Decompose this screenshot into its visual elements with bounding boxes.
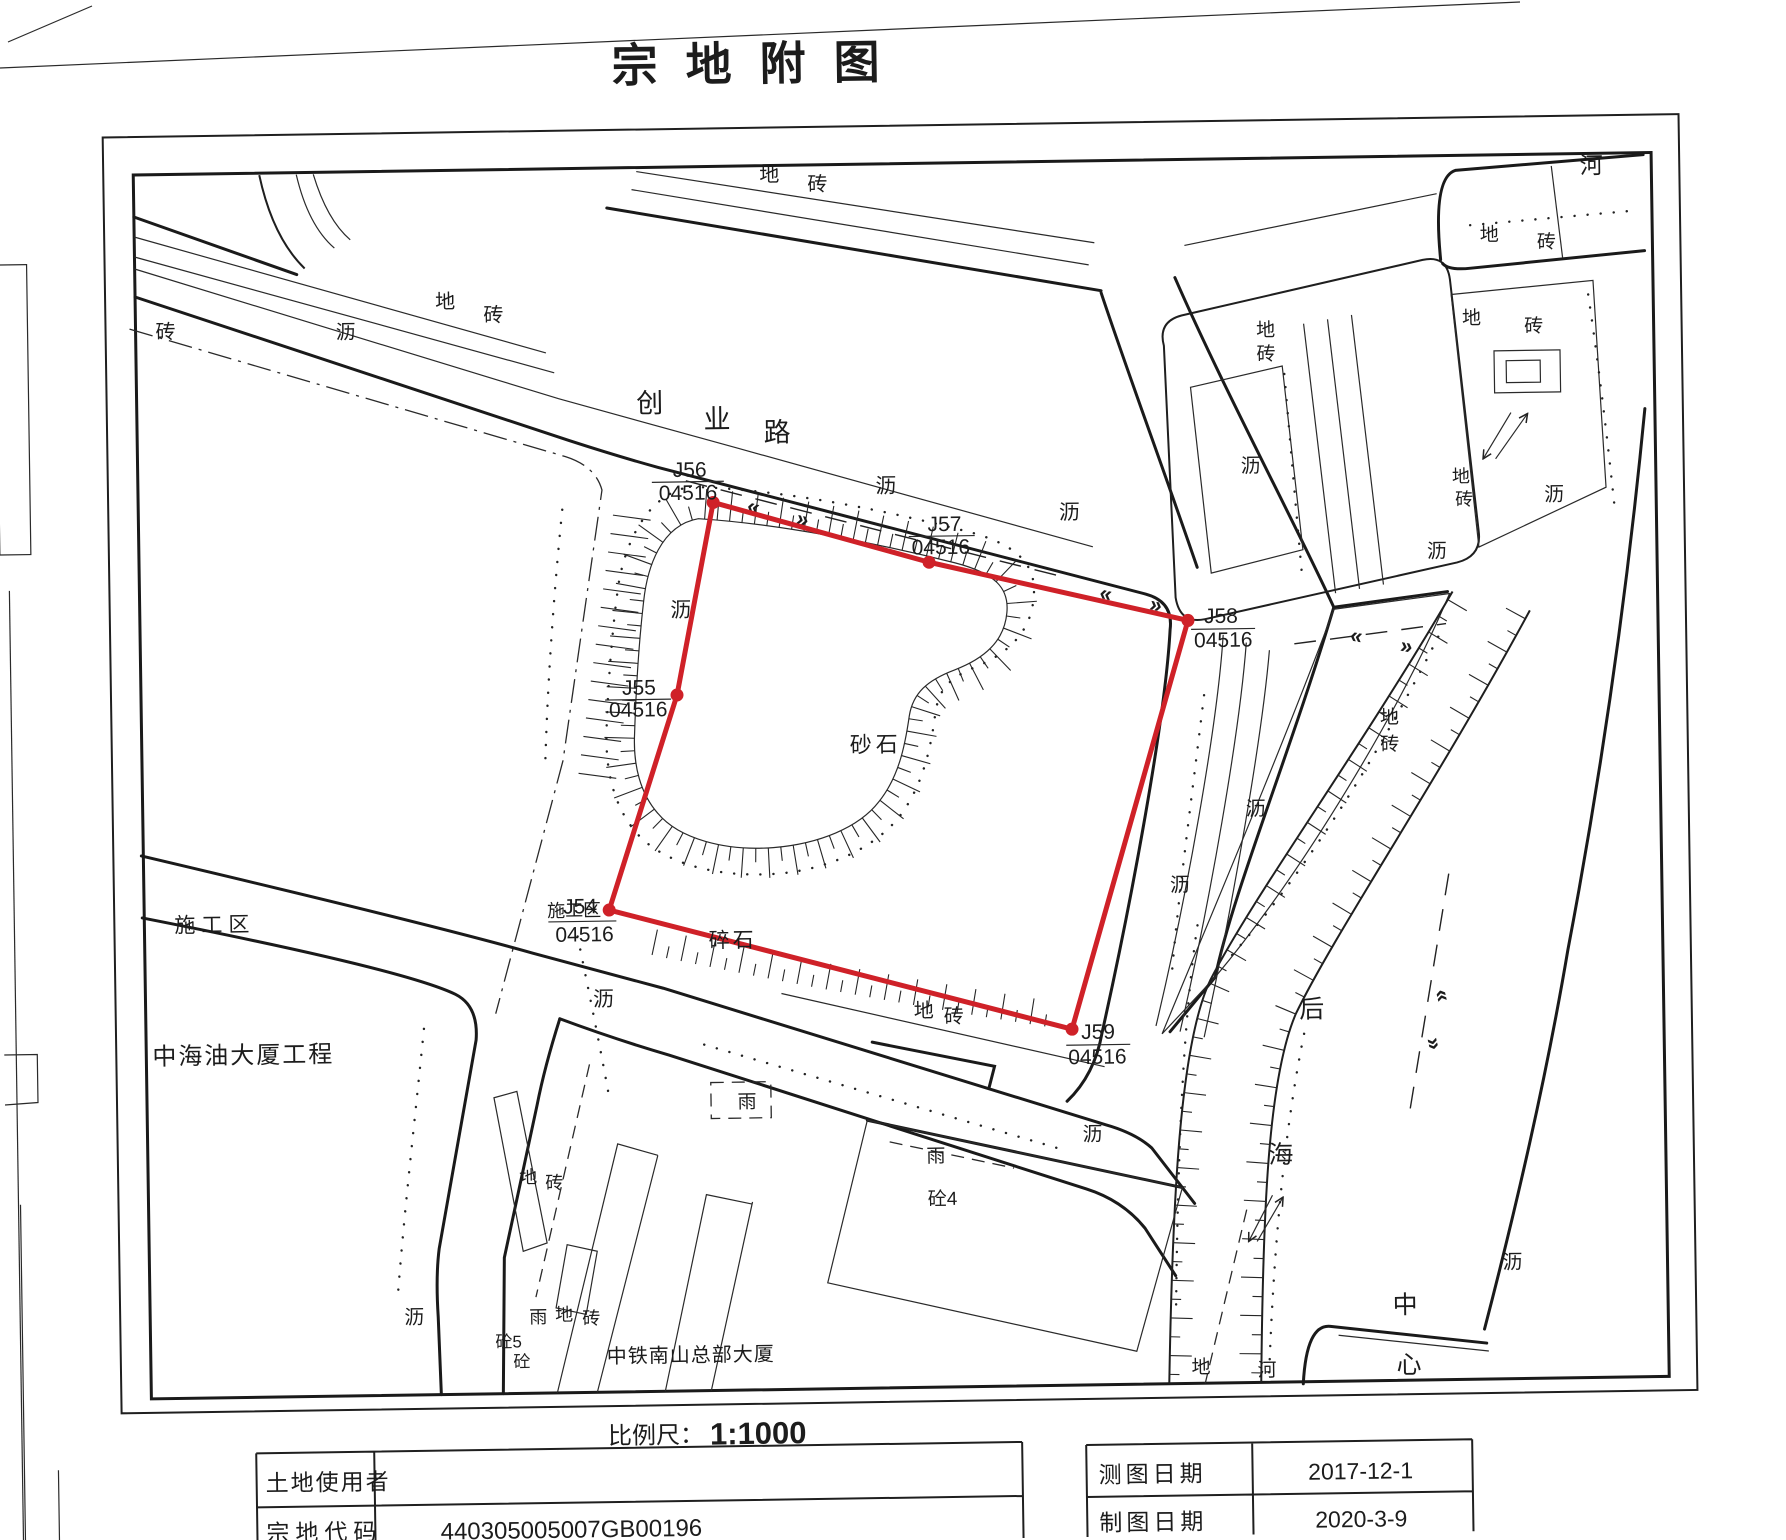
canal-name-char: 心 (1396, 1351, 1421, 1379)
surface-label: 雨 (737, 1092, 756, 1113)
surface-label: 沥 (404, 1307, 424, 1329)
surface-label: 沥 (1544, 484, 1564, 506)
point-code: 04516 (911, 536, 970, 560)
date-table: 测图日期 2017-12-1 制图日期 2020-3-9 (1086, 1439, 1473, 1537)
road-network (131, 155, 1659, 1401)
canal (1155, 412, 1541, 1383)
surface-label: 砖 (1455, 489, 1473, 509)
canal-name-char: 中 (1392, 1291, 1417, 1319)
slope-hatch-ticks (601, 484, 1041, 880)
point-id: J55 (622, 676, 656, 699)
surface-label: 地 (555, 1305, 573, 1325)
canal-name-char: 后 (1299, 995, 1324, 1023)
surface-label: 沥 (1059, 501, 1080, 524)
draw-date-value: 2020-3-9 (1315, 1505, 1407, 1532)
scale-label: 比例尺： (608, 1422, 704, 1450)
point-label-J58: J58 04516 (1191, 604, 1256, 652)
point-code: 04516 (1194, 628, 1253, 652)
point-id: J56 (673, 459, 707, 482)
surface-label: 沥 (1246, 798, 1266, 820)
surface-label: 砖 (1256, 343, 1275, 365)
crc-tower-label: 中铁南山总部大厦 (607, 1343, 775, 1368)
surface-label: 砖 (944, 1005, 964, 1028)
surface-label: 地 (1462, 307, 1481, 329)
parcel-fill-label: 砂石 (850, 732, 902, 758)
survey-date-value: 2017-12-1 (1308, 1457, 1413, 1485)
adjacent-sheet-fragments (0, 264, 60, 1540)
point-id: J59 (1081, 1021, 1115, 1044)
road-name-char: 创 (636, 388, 663, 418)
crushed-stone-label: 碎石 (708, 929, 756, 953)
canal-name-char: 海 (1268, 1141, 1293, 1169)
page-title: 宗地附图 (611, 36, 908, 92)
road-arrow-icon: « (1348, 622, 1364, 649)
canal-name-char: 河 (1257, 1359, 1276, 1381)
surface-label: 砖 (155, 320, 175, 343)
surface-label: 沥 (1241, 455, 1261, 477)
point-label-J56: J56 04516 (652, 458, 725, 505)
boundary-point-J55 (670, 688, 683, 701)
surface-label: 沥 (1427, 541, 1447, 563)
road-arrow-icon: » (1398, 632, 1414, 659)
point-code: 04516 (609, 698, 668, 722)
surface-label: 砖 (545, 1173, 563, 1193)
point-label-J57: J57 04516 (908, 513, 975, 560)
surface-label: 砖 (1524, 315, 1543, 337)
surface-label: 砖 (1380, 733, 1399, 755)
surface-label: 砖 (807, 173, 827, 196)
point-code: 04516 (1068, 1045, 1127, 1069)
road-markings: « » « » « » « » (686, 470, 1458, 1064)
surface-label: 沥 (670, 599, 691, 622)
surface-label: 地 (759, 163, 779, 186)
surface-label: 砖 (582, 1308, 600, 1328)
surface-label: 沥 (1082, 1124, 1102, 1146)
surface-label: 砼 (513, 1352, 530, 1371)
land-user-label: 土地使用者 (265, 1468, 390, 1496)
point-id: J57 (927, 513, 961, 536)
surface-label: 地 (1191, 1356, 1210, 1378)
point-id: J58 (1204, 605, 1238, 628)
point-label-J55: J55 04516 (605, 676, 672, 722)
road-arrow-icon: « (1429, 987, 1456, 1005)
boundary-point-J54 (603, 903, 616, 916)
river-label: 河 (1580, 152, 1603, 178)
surface-label: 砖 (1537, 231, 1556, 253)
info-table: 土地使用者 宗地代码 440305005007GB00196 (256, 1442, 1023, 1540)
parcel-code-value: 440305005007GB00196 (440, 1515, 702, 1540)
draw-date-label: 制图日期 (1099, 1508, 1207, 1536)
parcel-code-label: 宗地代码 (266, 1518, 382, 1540)
surface-label: 地 (914, 999, 934, 1022)
surface-label: 沥 (335, 322, 355, 344)
cadastral-map-scan: 宗地附图 (0, 0, 1786, 1540)
map-place-labels: 创 业 路 砂石 碎石 施工区 中海油大厦工程 中铁南山总部大厦 后 海 中 心… (139, 152, 1620, 1398)
surface-label: 雨 (529, 1307, 547, 1327)
surface-label: 沥 (593, 988, 614, 1011)
surface-label: 砼5 (495, 1332, 522, 1351)
boundary-point-J59 (1065, 1023, 1078, 1036)
surface-label: 沥 (875, 475, 896, 498)
point-code: 04516 (659, 481, 718, 505)
point-label-J54: 施工区 J54 04516 (547, 895, 617, 947)
survey-date-label: 测图日期 (1098, 1460, 1206, 1488)
map-frame (103, 114, 1698, 1413)
point-id: J54 (563, 895, 598, 919)
road-name-char: 业 (703, 404, 730, 434)
construction-zone-label: 施工区 (174, 913, 255, 937)
surface-label: 地 (519, 1167, 537, 1187)
northeast-blocks (1160, 155, 1650, 621)
surface-label: 沥 (1502, 1252, 1522, 1274)
map-surface-labels: 砖 沥 地 砖 地 砖 沥 沥 沥 沥 地 砖 沥 雨 地 砖 砼5 砼 雨 雨… (153, 152, 1577, 1394)
surface-label: 地 (1256, 319, 1275, 341)
scanned-parcel-map-sheet: 宗地附图 (0, 0, 1786, 1540)
surface-label: 地 (1452, 466, 1470, 486)
surface-label: 砖 (483, 304, 503, 327)
road-arrow-icon: » (1421, 1035, 1448, 1053)
surface-label: 地 (1480, 224, 1499, 246)
road-name-char: 路 (763, 417, 790, 447)
surface-label: 砼4 (928, 1188, 958, 1210)
surface-label: 沥 (1170, 874, 1190, 896)
slope-hatch-ticks (575, 515, 655, 779)
point-code: 04516 (555, 923, 614, 947)
surface-label: 地 (1380, 706, 1399, 728)
surface-label: 地 (435, 290, 455, 313)
surface-label: 雨 (926, 1146, 945, 1167)
cnooc-project-label: 中海油大厦工程 (152, 1041, 334, 1071)
